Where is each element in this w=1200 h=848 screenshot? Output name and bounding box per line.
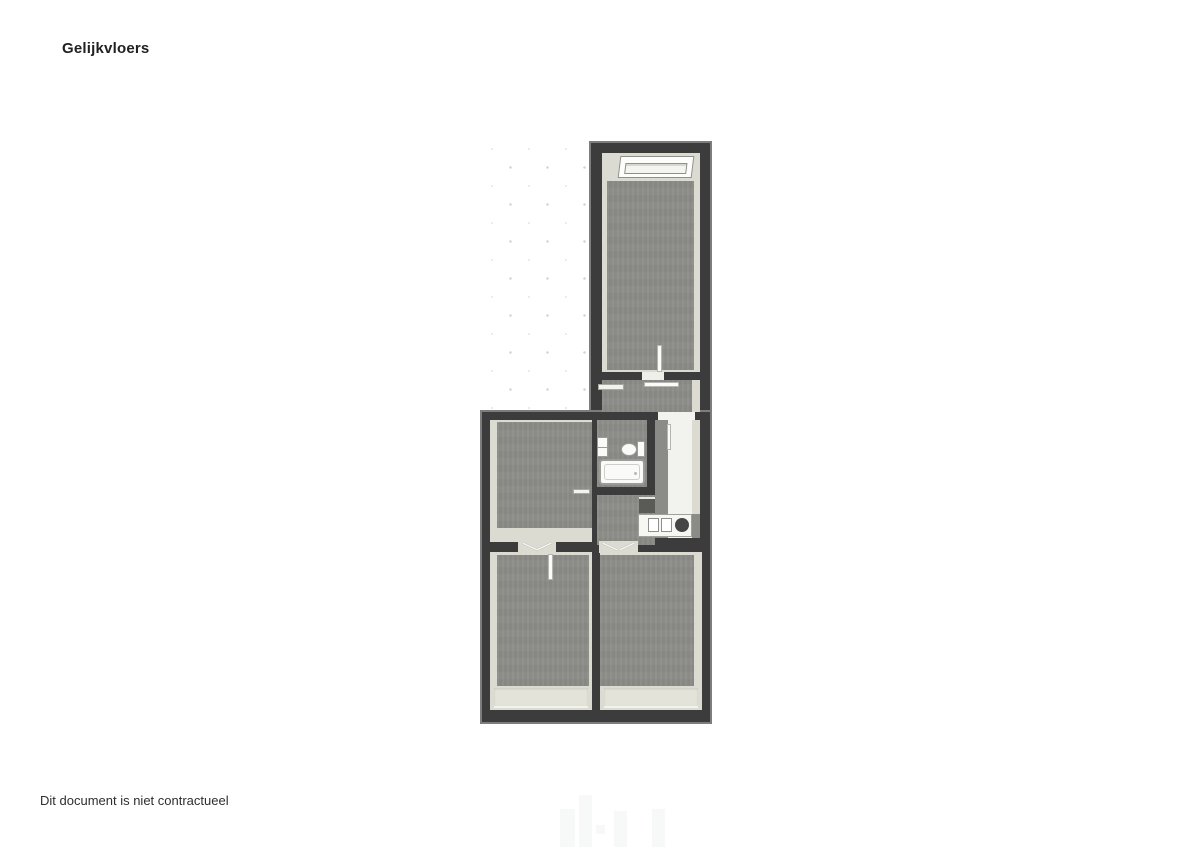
room-living-floor <box>497 422 592 528</box>
bedroom-left-floor <box>497 555 589 686</box>
bathroom <box>597 420 647 487</box>
watermark-bar <box>560 809 575 847</box>
bedroom-left <box>490 552 592 710</box>
shelf-fixture <box>598 384 624 390</box>
watermark-bar <box>579 795 592 847</box>
door-swing-mark <box>620 543 635 551</box>
bedroom-right-floor <box>600 555 694 686</box>
window-band <box>494 688 588 708</box>
hallway-margin <box>692 420 700 514</box>
corridor <box>602 380 700 412</box>
door-leaf <box>548 554 553 580</box>
door-swing-mark <box>523 543 538 551</box>
room-living <box>490 420 592 542</box>
room-top <box>602 153 700 372</box>
door-swing-mark <box>603 543 618 551</box>
outdoor-dotted-grid <box>488 143 590 413</box>
door-leaf <box>644 382 679 387</box>
kitchen-sink-icon <box>648 518 659 532</box>
toilet-bowl-icon <box>621 443 637 456</box>
window-band <box>604 688 698 708</box>
bathtub-icon <box>599 459 645 485</box>
bedroom-right <box>600 552 702 710</box>
kitchen-sink-icon <box>661 518 672 532</box>
door-opening <box>642 372 664 380</box>
door-swing-mark <box>537 543 552 551</box>
watermark-bar <box>596 825 605 834</box>
watermark-bar <box>614 811 627 847</box>
skylight-inner-frame <box>624 163 687 174</box>
disclaimer-text: Dit document is niet contractueel <box>40 793 229 808</box>
door-leaf <box>667 424 671 450</box>
bathroom-cabinet-icon <box>597 437 608 457</box>
kitchen-counter <box>638 514 692 537</box>
page-title: Gelijkvloers <box>62 40 149 57</box>
toilet-tank-icon <box>637 441 645 457</box>
corridor-margin <box>692 380 700 412</box>
bathtub-drain <box>634 472 637 475</box>
watermark-bar <box>652 809 665 847</box>
shelf-fixture <box>573 489 590 494</box>
cooktop-icon <box>675 518 689 532</box>
door-leaf <box>657 345 662 372</box>
room-top-floor <box>607 181 694 370</box>
watermark-logo <box>556 795 676 848</box>
kitchen-appliance-icon <box>639 497 655 513</box>
skylight-window-icon <box>618 156 695 178</box>
cabinet-divider <box>598 447 607 448</box>
